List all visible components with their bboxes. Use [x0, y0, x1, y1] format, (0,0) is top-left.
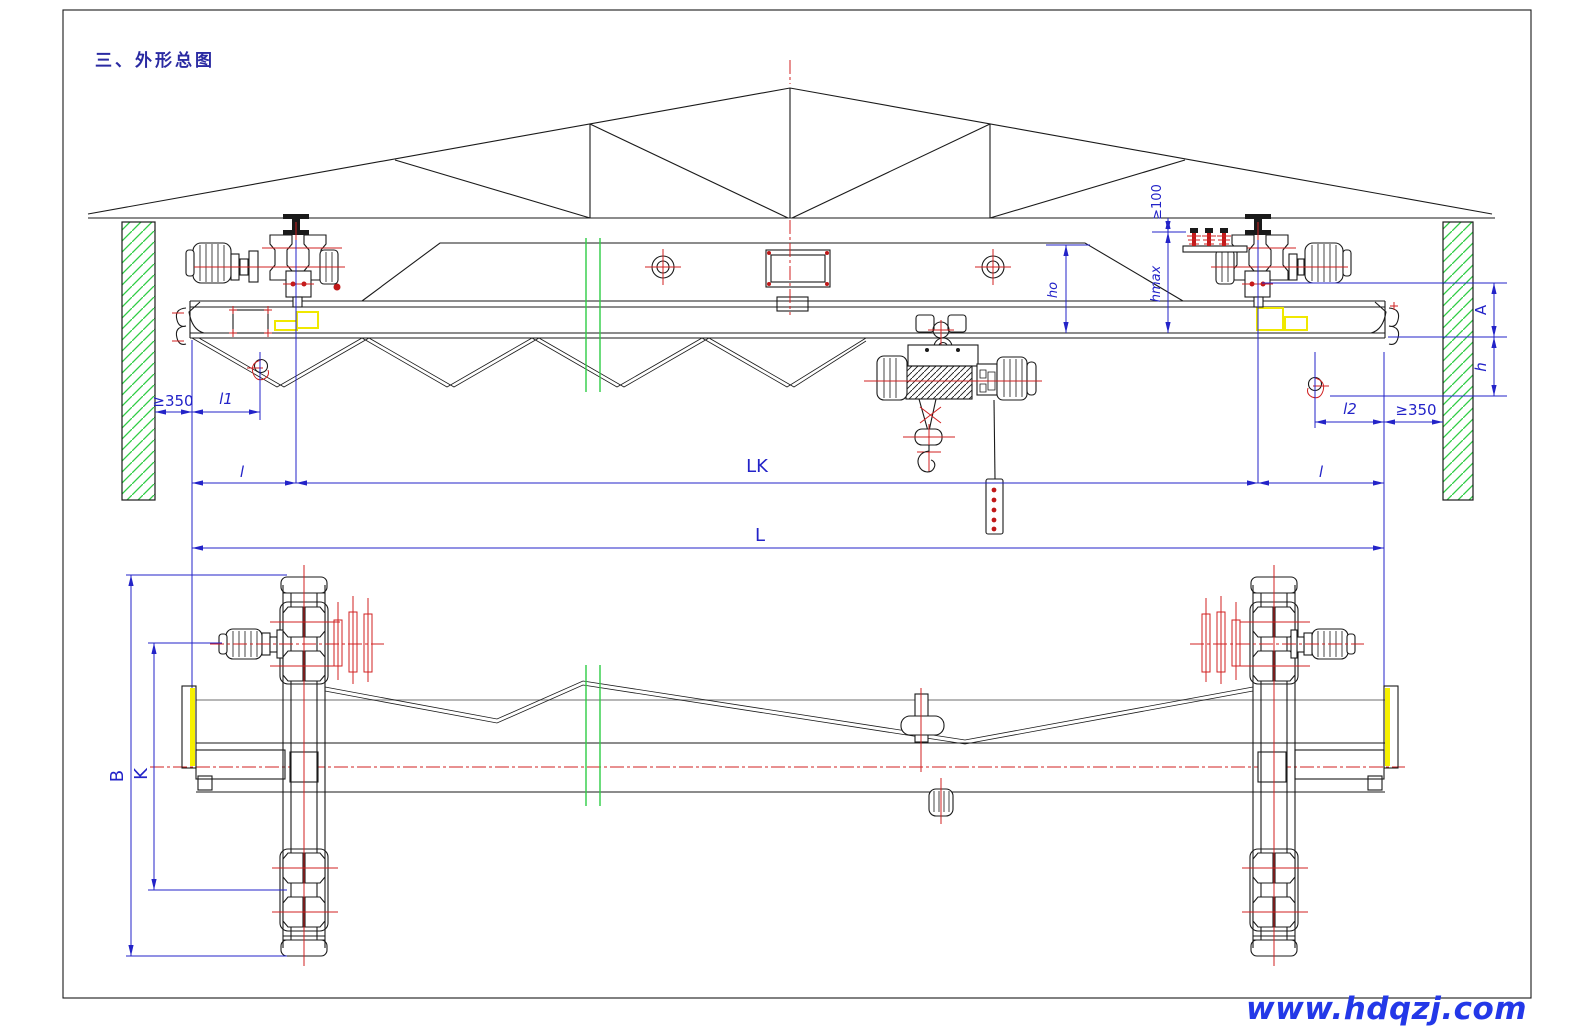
- pendant-controller: [986, 400, 1003, 534]
- girder-left-end: [172, 284, 341, 345]
- bridge-girder-plan: [150, 665, 1405, 824]
- dim-h-label: h: [1472, 362, 1490, 372]
- rope-drum: [906, 366, 972, 399]
- hook-limit-right-icon: [1308, 378, 1330, 398]
- horizontal-bracing: [325, 681, 1253, 740]
- dim-clearance-left-label: ≥350: [152, 392, 193, 410]
- dim-l2-label: l2: [1343, 400, 1357, 418]
- left-wall-column: [122, 222, 155, 500]
- dim-l1-label: l1: [219, 390, 233, 408]
- current-collectors: [1202, 596, 1240, 684]
- dim-l-left-label: l: [240, 463, 245, 481]
- roof-truss: [88, 60, 1495, 218]
- dim-b-label: B: [107, 770, 128, 782]
- dim-a-label: A: [1472, 304, 1490, 315]
- hoist-gearbox: [877, 356, 907, 400]
- dim-headroom-label: ≥100: [1150, 184, 1165, 220]
- plan-view: B K: [107, 565, 1405, 966]
- girder-hole-left: [645, 249, 681, 285]
- watermark: www.hdqzj.com: [1246, 991, 1527, 1027]
- right-wall-column: [1443, 222, 1473, 500]
- dim-hmax-label: hmax: [1149, 265, 1164, 302]
- hoist-hook: [903, 424, 955, 472]
- drawing-sheet: 三、外形总图: [0, 0, 1573, 1029]
- dim-span-lk-label: LK: [746, 456, 769, 477]
- hook-limit-left-icon: [247, 360, 269, 380]
- dim-length-l-label: L: [755, 525, 765, 546]
- girder-hole-right: [975, 249, 1011, 285]
- insulator-icon: [1202, 228, 1216, 246]
- dim-k-label: K: [131, 767, 152, 780]
- insulator-icon: [1217, 228, 1231, 246]
- girder-electrical-box: [766, 250, 830, 311]
- front-elevation-view: ≥350 l1 l LK l l2 ≥350 L ≥100 hmax ho A …: [88, 60, 1507, 688]
- dim-l-right-label: l: [1319, 463, 1324, 481]
- hoist-motor: [997, 357, 1027, 400]
- trolley-wheel: [916, 315, 934, 332]
- right-end-truck-front: [1183, 222, 1351, 330]
- hoist-frame: [908, 345, 978, 366]
- dim-ho-label: ho: [1046, 282, 1061, 298]
- drawing-title: 三、外形总图: [95, 50, 215, 71]
- electric-hoist: [864, 315, 1042, 534]
- hoist-plan: [901, 688, 953, 824]
- wire-rope: [919, 399, 936, 431]
- insulator-icon: [1187, 228, 1201, 246]
- current-collectors: [334, 596, 372, 684]
- dim-clearance-right-label: ≥350: [1395, 401, 1436, 419]
- left-end-truck-front: [186, 222, 345, 330]
- crane-outline-drawing: 三、外形总图: [0, 0, 1573, 1029]
- trolley-wheel: [948, 315, 966, 332]
